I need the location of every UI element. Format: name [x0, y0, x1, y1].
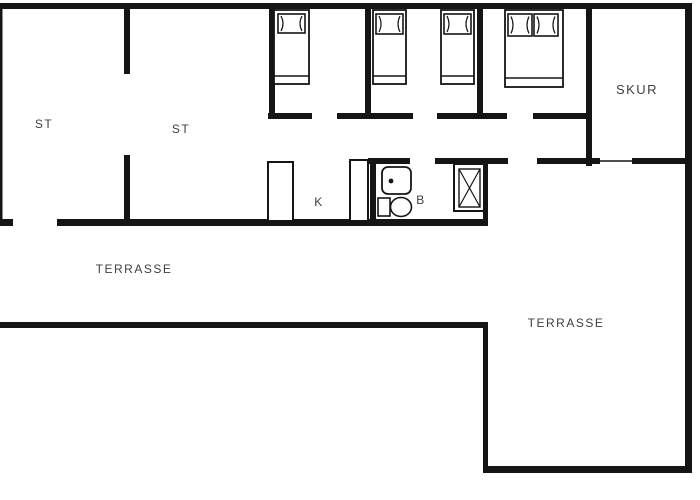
shower-icon — [454, 164, 484, 211]
toilet-icon — [378, 198, 412, 217]
wall-bedroom2-3 — [477, 9, 483, 119]
kitchen-counter — [350, 160, 368, 221]
wall-shed-bottom-right — [632, 158, 685, 164]
floor-plan-drawing: ST ST K B SKUR TERRASSE TERRASSE — [0, 0, 700, 500]
terrace-right-edge-left — [483, 322, 488, 471]
wall-st-divider-lower — [124, 155, 130, 226]
wall-corridor-seg3 — [437, 113, 507, 119]
label-terrace-left: TERRASSE — [96, 262, 173, 276]
wall-top — [0, 3, 692, 9]
terrace-right-edge-bottom — [483, 466, 692, 473]
double-bed — [505, 10, 563, 87]
wall-right — [685, 3, 692, 473]
single-bed — [373, 10, 406, 84]
label-terrace-right: TERRASSE — [528, 316, 605, 330]
wall-corridor-seg2 — [337, 113, 413, 119]
wall-corridor-seg1 — [268, 113, 312, 119]
single-bed — [441, 10, 474, 84]
label-kitchen: K — [314, 195, 324, 209]
label-living-room-2: ST — [172, 122, 190, 136]
label-bathroom: B — [416, 193, 426, 207]
kitchen-counter — [268, 162, 293, 221]
floor-plan: ST ST K B SKUR TERRASSE TERRASSE — [0, 0, 700, 500]
wall-st-divider-upper — [124, 9, 130, 74]
wall-shed-left — [586, 9, 592, 166]
terrace-left-edge-bottom — [0, 322, 488, 328]
wall-bottom-stub — [0, 219, 13, 226]
wall-corridor-seg4 — [533, 113, 586, 119]
wall-bedroom1-2 — [365, 9, 371, 119]
label-shed: SKUR — [616, 82, 658, 97]
walls — [0, 3, 692, 473]
wall-bathroom-left — [370, 158, 376, 226]
furniture — [268, 10, 563, 221]
wall-left — [0, 3, 3, 226]
washbasin-icon — [382, 167, 411, 194]
single-bed — [274, 10, 309, 84]
label-living-room-1: ST — [35, 117, 53, 131]
wall-shed-bottom-left — [537, 158, 600, 164]
